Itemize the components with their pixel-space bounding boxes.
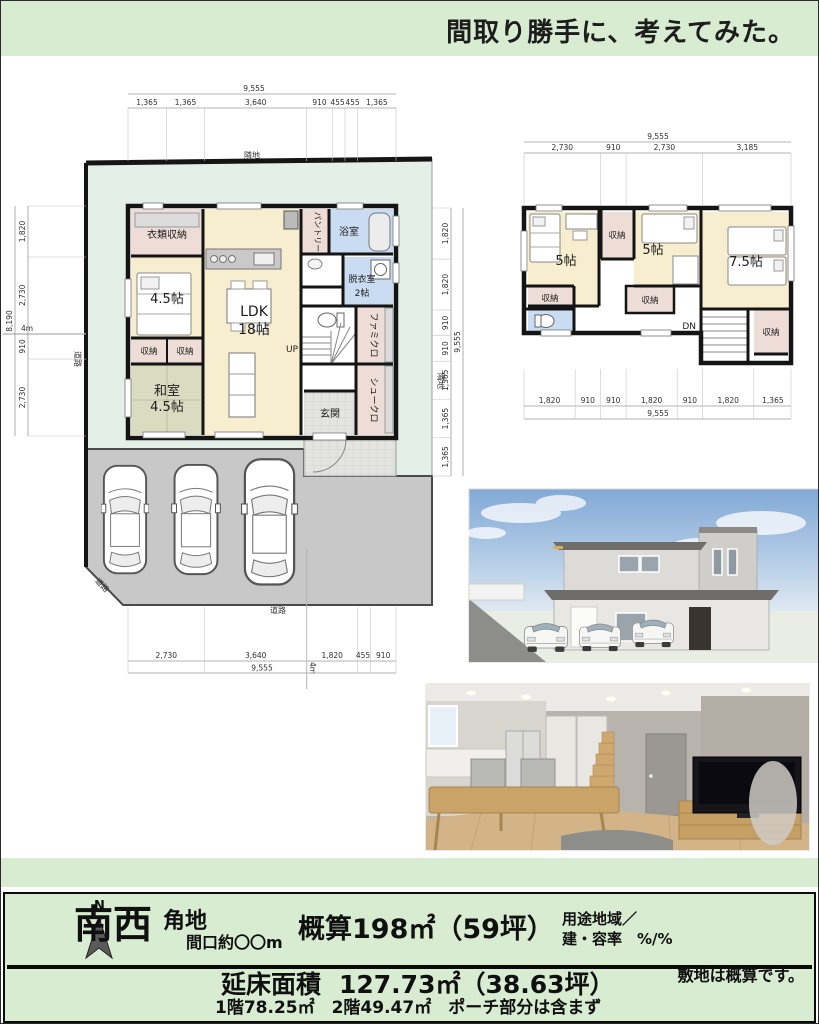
site-area-value: 概算198㎡（59坪） — [298, 916, 554, 943]
dim-label: 1,820 — [441, 223, 450, 245]
dim-label: 9,555 — [453, 331, 462, 353]
dim-label: 455 — [345, 98, 360, 107]
dim-label: 1,365 — [441, 446, 450, 468]
corner-lot-label: 角地 — [163, 911, 207, 933]
dim-label: 2,730 — [18, 284, 27, 306]
room-label-entrance: 玄関 — [320, 407, 340, 420]
dim-label: 1,365 — [366, 98, 388, 107]
dim-label: 2,730 — [18, 387, 27, 409]
room-label-2f-bedroom-mid: 5帖 — [642, 243, 663, 258]
dim-label: 8,190 — [5, 310, 14, 332]
dim-label: 2,730 — [654, 143, 676, 152]
flyer-page: 間取り勝手に、考えてみた。 — [0, 0, 819, 1024]
zoning-line2: 建・容率 %/% — [562, 932, 673, 947]
dim-label: 1,365 — [441, 408, 450, 430]
dim-label: 455 — [356, 651, 371, 660]
dim-label: 1,820 — [441, 274, 450, 296]
dim-label: 2,730 — [156, 651, 178, 660]
stairs-up-label: UP — [286, 345, 299, 355]
room-label-closet-b: 収納 — [176, 346, 193, 357]
dim-label: 3,640 — [245, 98, 267, 107]
dim-label: 910 — [312, 98, 327, 107]
green-divider-strip — [1, 858, 818, 887]
road-label-bottom: 道路 — [270, 605, 286, 615]
floor2-plan: 5帖 収納 5帖 7.5帖 収納 収納 収納 DN — [521, 205, 794, 363]
render-car-3 — [632, 620, 673, 647]
room-label-family-closet: ファミクロ — [368, 312, 379, 357]
interior-render — [426, 684, 809, 850]
room-label-2f-closet-right: 収納 — [762, 327, 779, 338]
dim-label: 9,555 — [251, 664, 273, 673]
dim-label: 910 — [581, 396, 596, 405]
room-label-2f-closet-left: 収納 — [541, 293, 558, 304]
car-1 — [101, 466, 149, 574]
dim-label: 1,820 — [18, 221, 27, 243]
room-label-bedroom45: 4.5帖 — [150, 292, 184, 307]
dim-label: 9,555 — [647, 132, 669, 141]
road-width-bottom: 4m — [308, 662, 317, 674]
dim-label: 1,820 — [641, 396, 663, 405]
room-label-ldk-size: 18帖 — [238, 322, 270, 338]
room-label-shoe-closet: シュークロ — [368, 377, 379, 422]
zoning-line1: 用途地域／ — [562, 912, 637, 927]
floor-area-breakdown: 1階78.25㎡ 2階49.47㎡ ポーチ部分は含まず — [215, 1000, 601, 1017]
dim-label: 1,820 — [321, 651, 343, 660]
dim-label: 9,555 — [647, 409, 669, 418]
dim-label: 1,365 — [441, 369, 450, 391]
room-label-pantry: パントリー — [313, 212, 322, 252]
neighbor-label-top: 隣地 — [244, 150, 260, 160]
room-label-washitsu: 和室 — [154, 383, 180, 399]
dim-label: 910 — [18, 339, 27, 354]
car-2 — [172, 465, 221, 574]
room-label-clothes-storage: 衣類収納 — [147, 228, 187, 241]
dim-label: 9,555 — [243, 84, 265, 93]
bottom-banner: N 南西 角地 間口約〇〇m 概算198㎡（59坪） 用途地域／ 建・容率 %/… — [3, 892, 816, 1023]
front-door — [689, 607, 711, 650]
stairs-down-label: DN — [682, 322, 696, 332]
dim-label: 910 — [441, 341, 450, 356]
room-label-dressing-size: 2帖 — [355, 287, 370, 299]
room-label-2f-closet-top: 収納 — [608, 230, 625, 241]
room-label-ldk: LDK — [240, 304, 269, 320]
floor-area-label: 延床面積 — [221, 972, 321, 997]
dim-label: 455 — [330, 98, 345, 107]
road-width-left: 4m — [21, 324, 33, 333]
floor1-plan: 衣類収納 4.5帖 収納 収納 和室 4.5帖 LDK 18帖 パントリー 浴室… — [125, 203, 399, 440]
entrance-door — [313, 433, 346, 440]
room-label-closet-a: 収納 — [140, 346, 157, 357]
dim-label: 910 — [683, 396, 698, 405]
dim-label: 1,365 — [762, 396, 784, 405]
dim-label: 910 — [606, 396, 621, 405]
dim-label: 910 — [376, 651, 391, 660]
frontage-label: 間口約〇〇m — [186, 935, 283, 951]
plans-canvas: 隣地 隣地 道路 道路 道路 4m 4m — [1, 1, 819, 861]
floor-area-value: 127.73㎡（38.63坪） — [339, 972, 615, 997]
dim-label: 1,820 — [539, 396, 561, 405]
room-label-2f-closet-mid: 収納 — [641, 295, 658, 306]
room-label-dressing: 脱衣室 — [348, 273, 375, 285]
room-label-bath: 浴室 — [339, 225, 359, 238]
dim-label: 1,820 — [717, 396, 739, 405]
dim-label: 2,730 — [552, 143, 574, 152]
dim-label: 3,640 — [245, 651, 267, 660]
site-direction: 南西 — [74, 906, 152, 945]
room-label-2f-bedroom-right: 7.5帖 — [729, 255, 763, 270]
car-3 — [242, 459, 298, 584]
site-note: 敷地は概算です。 — [678, 968, 804, 984]
exterior-render — [466, 489, 819, 662]
porch — [304, 439, 396, 476]
render-car-1 — [525, 624, 568, 652]
dim-label: 910 — [441, 316, 450, 331]
dim-label: 3,185 — [737, 143, 759, 152]
room-label-2f-bedroom-left: 5帖 — [555, 254, 576, 269]
dim-label: 910 — [606, 143, 621, 152]
render-car-2 — [579, 624, 620, 651]
room-label-washitsu-size: 4.5帖 — [150, 400, 184, 415]
dim-label: 1,365 — [175, 98, 197, 107]
dim-label: 1,365 — [136, 98, 158, 107]
